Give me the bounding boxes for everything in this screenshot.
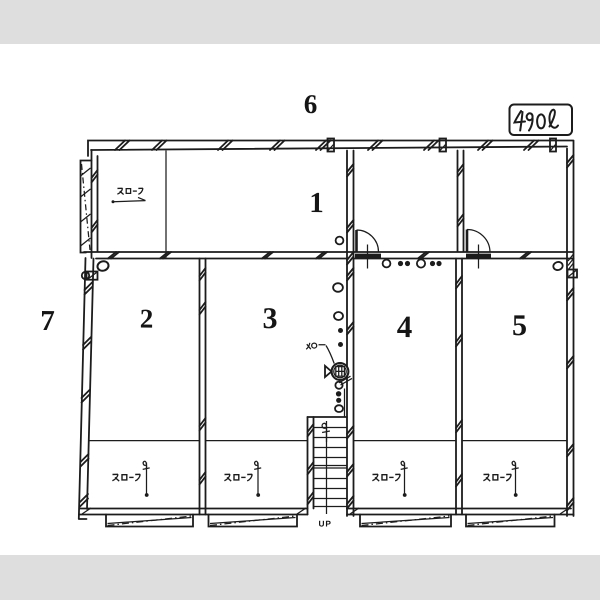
svg-text:5: 5 bbox=[512, 309, 527, 342]
svg-text:4: 4 bbox=[397, 309, 413, 344]
svg-text:UP: UP bbox=[318, 519, 331, 529]
svg-text:2: 2 bbox=[140, 303, 154, 333]
svg-text:6: 6 bbox=[304, 89, 318, 119]
svg-text:1: 1 bbox=[309, 187, 324, 219]
svg-text:3: 3 bbox=[262, 302, 277, 335]
svg-text:7: 7 bbox=[40, 305, 55, 337]
